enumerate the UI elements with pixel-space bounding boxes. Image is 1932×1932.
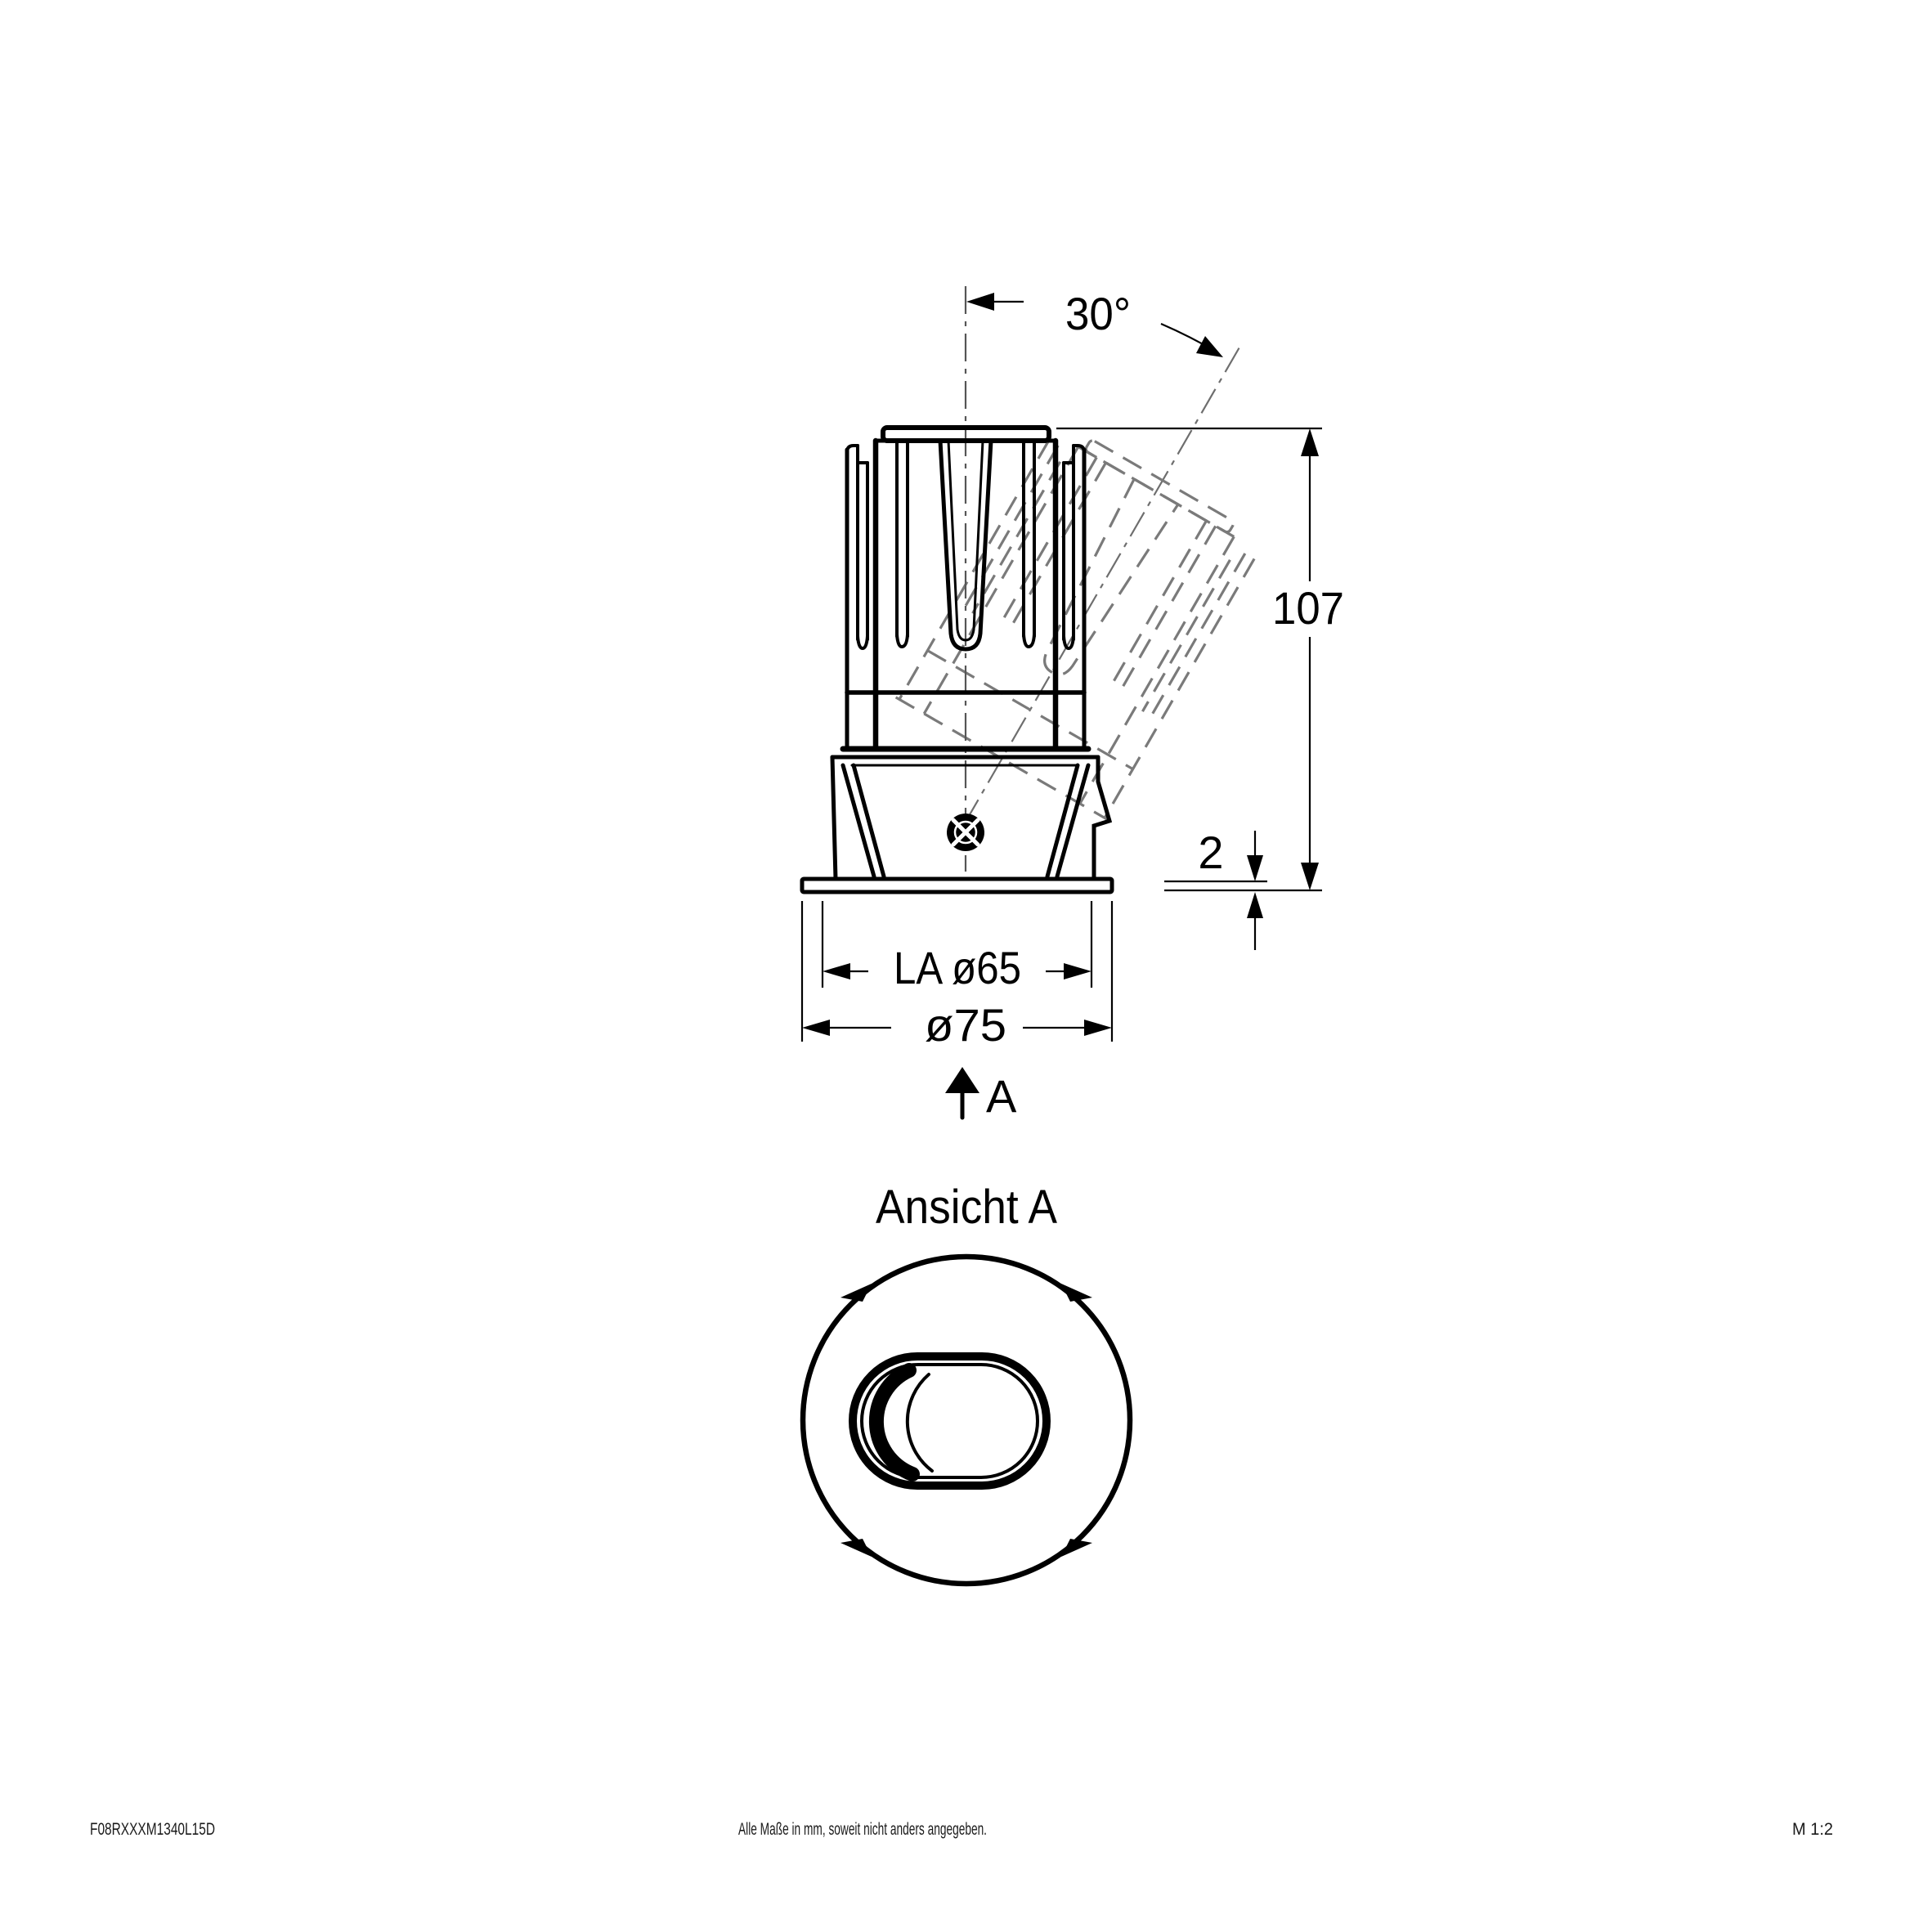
angle-label: 30° [1065, 288, 1131, 339]
dimension-note: Alle Maße in mm, soweit nicht anders ang… [738, 1820, 987, 1839]
arrowhead-left-icon [966, 293, 994, 311]
cutout-label: LA ø65 [894, 942, 1021, 993]
arrowhead-down-icon [1247, 855, 1263, 881]
scale-label: M 1:2 [1792, 1820, 1833, 1839]
ceiling-flange [802, 879, 1112, 892]
height-dimension: 107 [1056, 428, 1344, 890]
bezel-label: ø75 [925, 999, 1006, 1051]
mounting-clip-icon [1061, 1539, 1092, 1557]
arrowhead-left-icon [823, 963, 850, 979]
arrowhead-arc-icon [1196, 336, 1223, 357]
height-label: 107 [1272, 582, 1344, 634]
flange-thickness-dimension: 2 [1164, 827, 1267, 950]
mounting-clip-icon [1061, 1284, 1092, 1302]
part-number: F08RXXXM1340L15D [90, 1820, 215, 1839]
view-arrow-icon [945, 1067, 979, 1093]
cutout-dimension: LA ø65 [823, 901, 1092, 993]
bottom-view-title: Ansicht A [876, 1181, 1057, 1234]
technical-drawing: 30° 107 2 LA ø65 ø75 [0, 0, 1932, 1932]
tilted-center-axis [963, 348, 1239, 827]
view-arrow-label: A [986, 1070, 1017, 1122]
arrowhead-right-icon [1084, 1020, 1112, 1036]
screw-head-icon [947, 814, 984, 851]
arrowhead-down-icon [1301, 863, 1319, 890]
trim-housing [802, 757, 1112, 892]
view-direction-marker: A [945, 1067, 1017, 1122]
flange-thickness-label: 2 [1198, 827, 1223, 878]
angle-dimension: 30° [966, 288, 1223, 357]
arrowhead-up-icon [1247, 892, 1263, 918]
arrowhead-left-icon [802, 1020, 830, 1036]
mounting-clip-icon [840, 1284, 872, 1302]
bottom-view [803, 1257, 1130, 1584]
arrowhead-up-icon [1301, 428, 1319, 456]
drawing-sheet: 30° 107 2 LA ø65 ø75 [0, 0, 1932, 1932]
mounting-clip-icon [840, 1539, 872, 1557]
arrowhead-right-icon [1064, 963, 1092, 979]
footer: F08RXXXM1340L15D Alle Maße in mm, soweit… [90, 1820, 1833, 1839]
